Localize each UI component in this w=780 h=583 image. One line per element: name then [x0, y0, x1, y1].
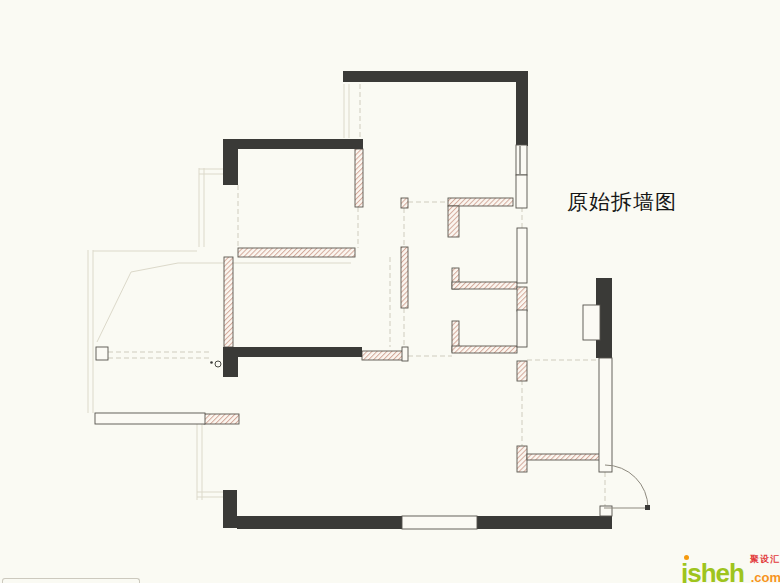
wall-demolish-hatched	[452, 282, 517, 289]
wall-structural	[223, 149, 238, 185]
wall-demolish-hatched	[452, 346, 517, 353]
reference-circle-mark	[215, 361, 221, 367]
wall-demolish-hatched	[527, 454, 600, 460]
wall-retained	[517, 310, 527, 347]
wall-demolish-hatched	[448, 206, 459, 237]
watermark-brand-text: jsheh	[681, 560, 744, 583]
wall-demolish-hatched	[355, 149, 363, 207]
wall-structural	[223, 347, 362, 357]
floor-plan-svg	[0, 0, 780, 583]
wall-demolish-hatched	[517, 446, 527, 472]
wall-structural	[223, 139, 363, 149]
wall-retained	[96, 347, 108, 360]
wall-retained	[583, 305, 600, 340]
wall-demolish-hatched	[362, 351, 403, 360]
wall-demolish-hatched	[238, 248, 355, 257]
floor-plan-canvas: 原始拆墙图 jsheh 聚设汇 .com	[0, 0, 780, 583]
wall-structural	[343, 71, 528, 82]
wall-structural	[477, 516, 612, 529]
wall-demolish-hatched	[448, 198, 513, 206]
wall-retained	[517, 228, 527, 283]
wall-retained	[402, 347, 408, 361]
wall-structural	[237, 516, 402, 529]
wall-demolish-hatched	[517, 287, 527, 311]
wall-retained	[402, 516, 477, 529]
cutoff-ui-box	[2, 578, 140, 583]
wall-retained	[516, 145, 527, 175]
wall-structural	[223, 347, 238, 377]
reference-dot-mark	[210, 361, 213, 364]
wall-retained	[516, 175, 527, 208]
page-title: 原始拆墙图	[567, 188, 677, 216]
wall-structural	[516, 82, 528, 146]
wall-demolish-hatched	[224, 257, 233, 347]
watermark-j-dot-icon	[684, 555, 689, 560]
wall-retained	[95, 413, 205, 424]
wall-demolish-hatched	[401, 247, 408, 308]
wall-retained	[599, 358, 612, 472]
watermark-tld-text: .com	[751, 571, 780, 583]
wall-structural	[223, 490, 237, 528]
wall-demolish-hatched	[517, 361, 527, 381]
watermark-chinese-text: 聚设汇	[750, 553, 780, 566]
entry-door-end-dot	[645, 505, 650, 510]
wall-demolish-hatched	[204, 414, 239, 424]
site-watermark: jsheh 聚设汇 .com	[681, 552, 780, 583]
wall-demolish-hatched	[401, 198, 408, 208]
